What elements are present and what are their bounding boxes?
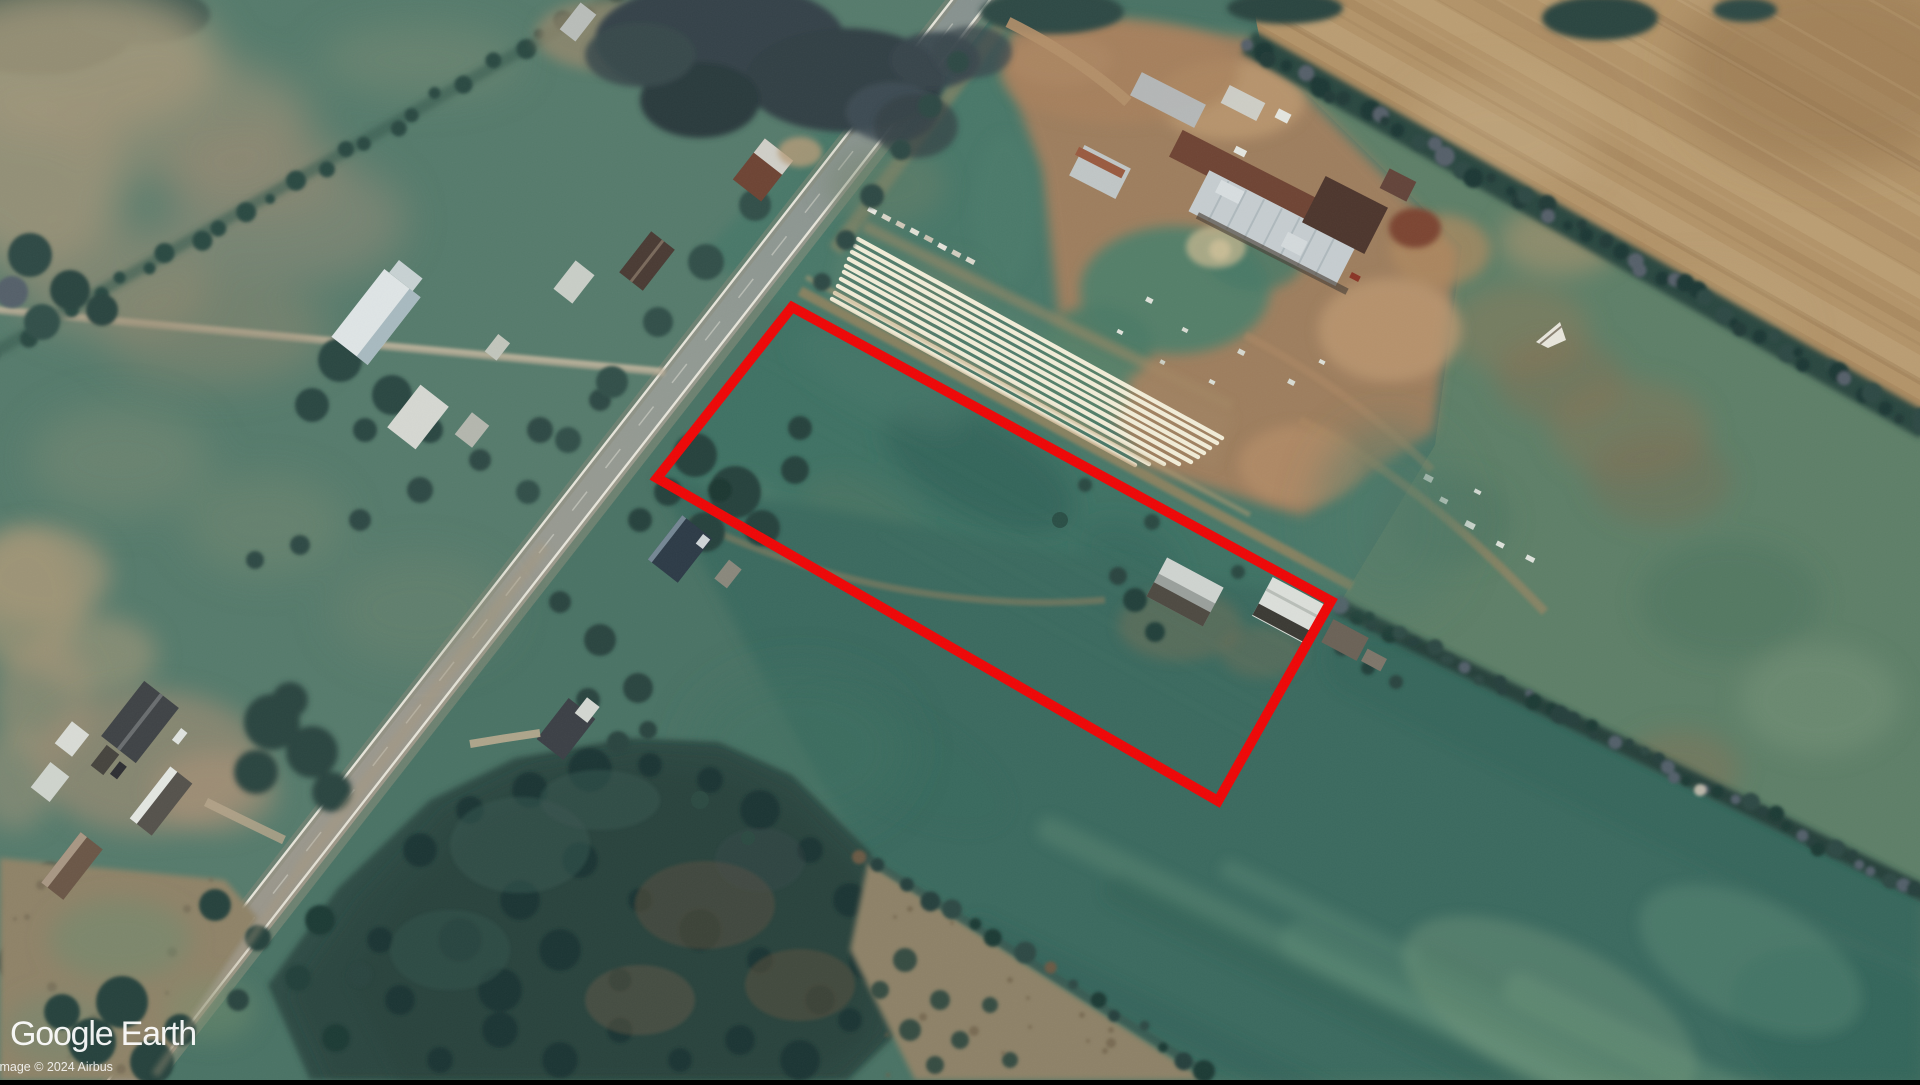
svg-text:Google Earth: Google Earth — [10, 1015, 196, 1053]
svg-text:Image © 2024 Airbus: Image © 2024 Airbus — [0, 1060, 113, 1074]
